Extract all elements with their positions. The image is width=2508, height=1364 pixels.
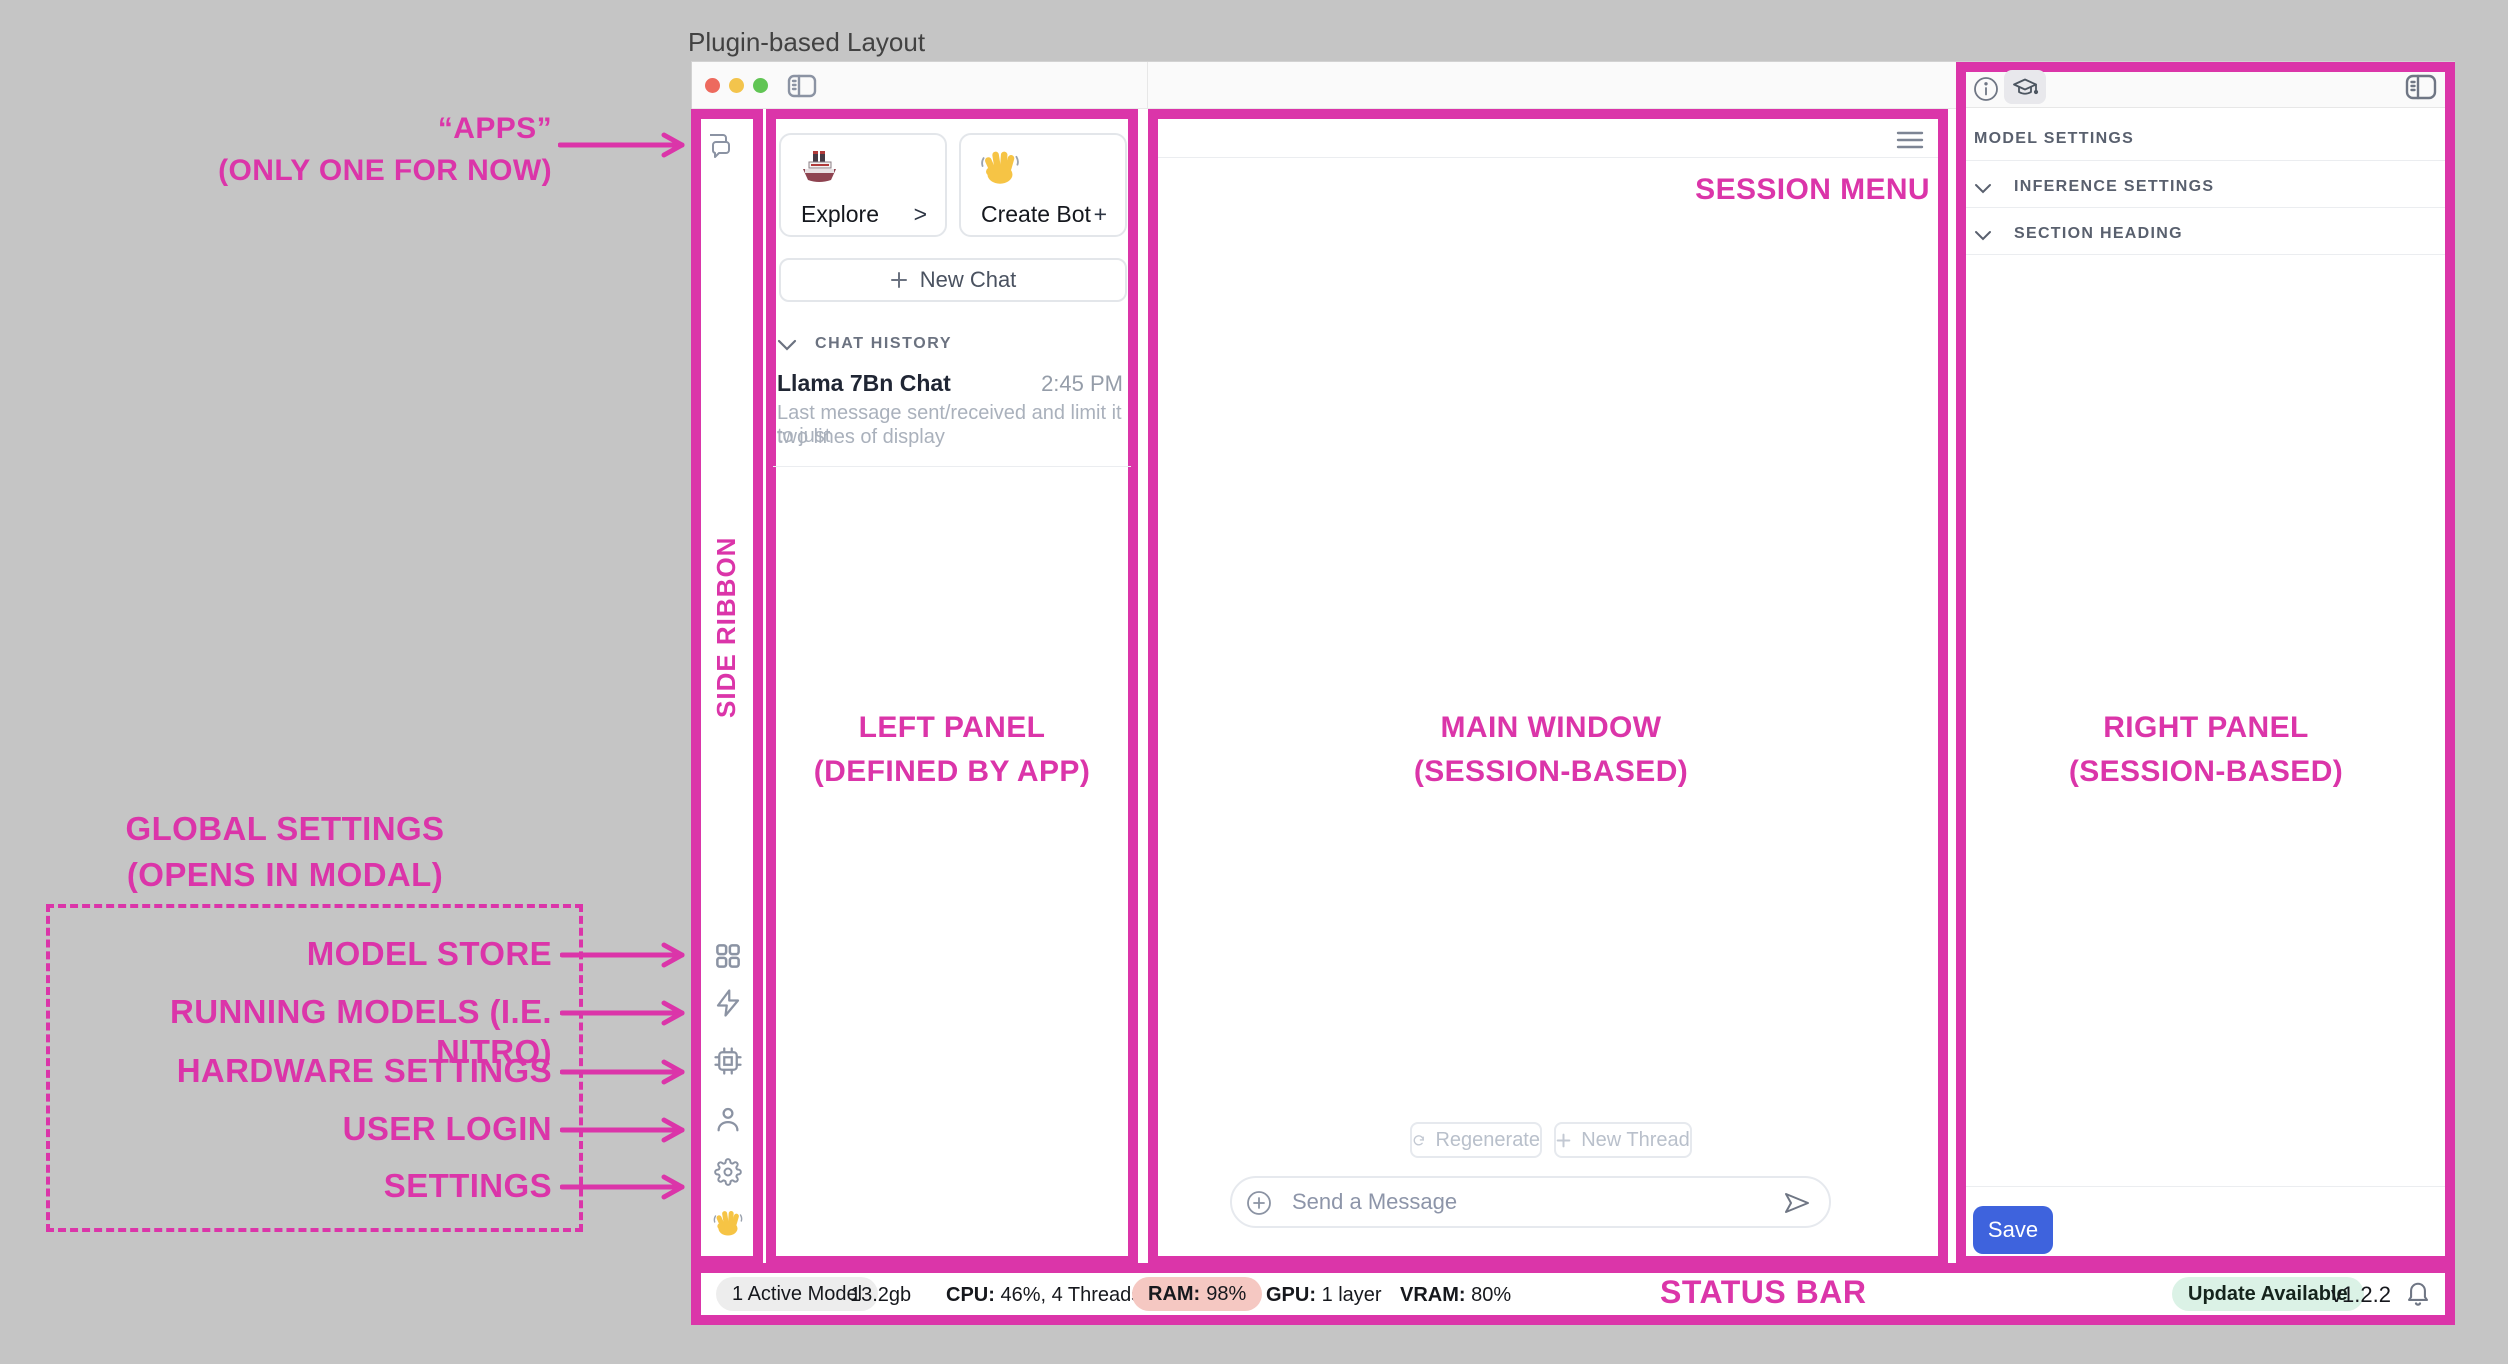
plus-icon xyxy=(890,271,908,289)
gpu-value: 1 layer xyxy=(1322,1284,1382,1306)
explore-card-label: Explore xyxy=(801,201,879,228)
ram-badge: RAM: 98% xyxy=(1132,1277,1262,1311)
version-label: v1.2.2 xyxy=(2331,1282,2391,1308)
cpu-status: CPU: 46%, 4 Threads xyxy=(946,1284,1141,1307)
chevron-down-icon[interactable] xyxy=(777,338,797,356)
ram-label: RAM: xyxy=(1148,1283,1200,1306)
right-panel-divider-2 xyxy=(1966,207,2445,208)
inference-settings-row[interactable]: INFERENCE SETTINGS xyxy=(2014,178,2214,196)
main-header-divider xyxy=(1158,157,1938,158)
annotation-left-panel: LEFT PANEL (DEFINED BY APP) xyxy=(752,706,1152,794)
chat-item-preview-line2: two lines of display xyxy=(777,426,945,449)
close-button[interactable] xyxy=(705,78,720,93)
cpu-value: 46%, 4 Threads xyxy=(1000,1284,1141,1306)
design-canvas: Plugin-based Layout xyxy=(0,0,2508,1364)
chip-icon[interactable] xyxy=(713,1046,743,1081)
annotation-side-ribbon: SIDE RIBBON xyxy=(711,518,742,718)
regenerate-button[interactable]: Regenerate xyxy=(1410,1122,1542,1158)
sidebar-toggle-icon[interactable] xyxy=(786,72,818,105)
vram-label: VRAM: xyxy=(1400,1284,1466,1306)
create-bot-card-label: Create Bot xyxy=(981,201,1091,228)
memory-size-value: 13.2gb xyxy=(850,1284,911,1307)
new-chat-label: New Chat xyxy=(920,267,1017,293)
settings-arrow xyxy=(560,1174,688,1200)
vram-status: VRAM: 80% xyxy=(1400,1284,1511,1307)
annotation-apps-line2: (ONLY ONE FOR NOW) xyxy=(152,150,552,192)
hamburger-menu-icon[interactable] xyxy=(1895,127,1925,158)
annotation-right-panel-line2: (SESSION-BASED) xyxy=(2006,750,2406,794)
chevron-down-icon[interactable] xyxy=(1974,228,1992,246)
annotation-session-menu: SESSION MENU xyxy=(1630,168,1930,212)
waving-hand-icon xyxy=(979,145,1021,192)
chat-item-title: Llama 7Bn Chat xyxy=(777,370,951,397)
graduation-cap-button[interactable] xyxy=(2004,70,2046,104)
apps-arrow xyxy=(558,132,688,158)
attach-plus-icon[interactable] xyxy=(1246,1190,1272,1221)
chevron-down-icon[interactable] xyxy=(1974,181,1992,199)
running-models-arrow xyxy=(560,1000,688,1026)
regenerate-label: Regenerate xyxy=(1435,1129,1540,1152)
plus-icon xyxy=(1556,1133,1571,1148)
sidebar-toggle-icon[interactable] xyxy=(2404,72,2438,107)
titlebar-divider xyxy=(1147,62,1148,109)
refresh-icon xyxy=(1412,1132,1425,1149)
create-bot-card-plus: + xyxy=(1094,201,1107,228)
grid-icon[interactable] xyxy=(713,941,743,976)
page-title: Plugin-based Layout xyxy=(688,27,925,58)
ram-value: 98% xyxy=(1206,1283,1246,1306)
annotation-right-panel-line1: RIGHT PANEL xyxy=(2006,706,2406,750)
person-icon[interactable] xyxy=(713,1104,743,1139)
annotation-settings: SETTINGS xyxy=(152,1166,552,1206)
annotation-main-window: MAIN WINDOW (SESSION-BASED) xyxy=(1351,706,1751,794)
user-login-arrow xyxy=(560,1117,688,1143)
annotation-apps: “APPS” (ONLY ONE FOR NOW) xyxy=(152,108,552,192)
chat-list-divider xyxy=(773,466,1131,467)
gpu-status: GPU: 1 layer xyxy=(1266,1284,1382,1307)
right-panel-footer-divider xyxy=(1966,1186,2445,1187)
explore-card-chevron: > xyxy=(914,201,927,228)
annotation-main-window-line2: (SESSION-BASED) xyxy=(1351,750,1751,794)
waving-hand-icon[interactable] xyxy=(712,1206,744,1243)
model-settings-header: MODEL SETTINGS xyxy=(1974,130,2134,148)
gear-icon[interactable] xyxy=(714,1158,742,1191)
info-icon[interactable] xyxy=(1972,75,2000,108)
annotation-status-bar: STATUS BAR xyxy=(1660,1274,1866,1311)
graduation-cap-icon xyxy=(2011,75,2039,99)
new-thread-button[interactable]: New Thread xyxy=(1554,1122,1692,1158)
cpu-label: CPU: xyxy=(946,1284,995,1306)
new-thread-label: New Thread xyxy=(1581,1129,1690,1152)
section-heading-row[interactable]: SECTION HEADING xyxy=(2014,225,2183,243)
message-composer xyxy=(1230,1176,1831,1228)
zoom-button[interactable] xyxy=(753,78,768,93)
message-input[interactable] xyxy=(1292,1180,1732,1224)
minimize-button[interactable] xyxy=(729,78,744,93)
ship-icon xyxy=(799,147,839,194)
annotation-hardware-settings: HARDWARE SETTINGS xyxy=(152,1051,552,1091)
annotation-apps-line1: “APPS” xyxy=(152,108,552,150)
new-chat-button[interactable]: New Chat xyxy=(779,258,1127,302)
lightning-icon[interactable] xyxy=(713,988,743,1023)
vram-value: 80% xyxy=(1471,1284,1511,1306)
chat-list-item[interactable]: Llama 7Bn Chat 2:45 PM Last message sent… xyxy=(773,366,1131,466)
chat-item-time: 2:45 PM xyxy=(1041,371,1123,397)
annotation-model-store: MODEL STORE xyxy=(152,934,552,974)
annotation-main-window-line1: MAIN WINDOW xyxy=(1351,706,1751,750)
annotation-left-panel-line1: LEFT PANEL xyxy=(752,706,1152,750)
hardware-settings-arrow xyxy=(560,1059,688,1085)
annotation-user-login: USER LOGIN xyxy=(152,1109,552,1149)
save-button[interactable]: Save xyxy=(1973,1206,2053,1254)
create-bot-card[interactable]: Create Bot + xyxy=(959,133,1127,237)
model-store-arrow xyxy=(560,942,688,968)
explore-card[interactable]: Explore > xyxy=(779,133,947,237)
right-panel-divider-1 xyxy=(1966,160,2445,161)
right-panel-divider-3 xyxy=(1966,254,2445,255)
chat-history-header[interactable]: CHAT HISTORY xyxy=(815,335,952,353)
annotation-global-settings-line1: GLOBAL SETTINGS xyxy=(85,806,485,852)
main-window xyxy=(1148,109,1948,1266)
bell-icon[interactable] xyxy=(2404,1278,2432,1313)
send-icon[interactable] xyxy=(1783,1190,1811,1221)
chat-bubbles-icon[interactable] xyxy=(705,131,737,166)
annotation-global-settings-line2: (OPENS IN MODAL) xyxy=(85,852,485,898)
annotation-left-panel-line2: (DEFINED BY APP) xyxy=(752,750,1152,794)
gpu-label: GPU: xyxy=(1266,1284,1316,1306)
annotation-global-settings: GLOBAL SETTINGS (OPENS IN MODAL) xyxy=(85,806,485,898)
annotation-right-panel: RIGHT PANEL (SESSION-BASED) xyxy=(2006,706,2406,794)
